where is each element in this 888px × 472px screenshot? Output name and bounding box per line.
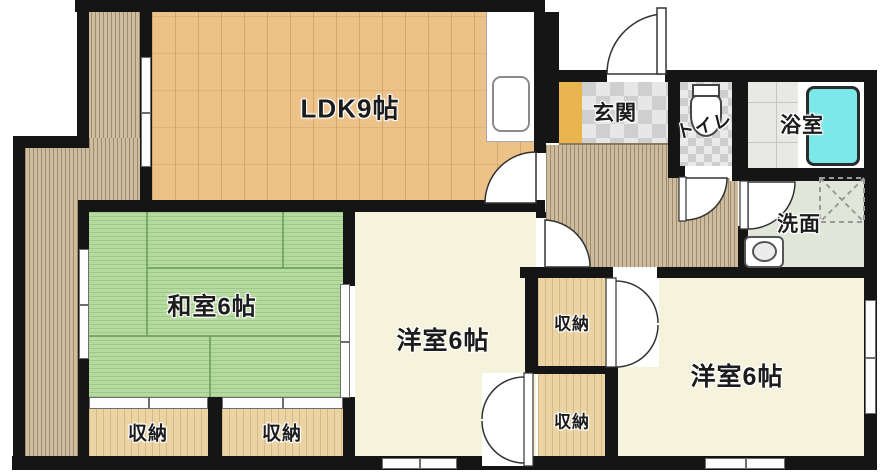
right-room-east-window	[865, 300, 876, 414]
entrance-door-arc	[607, 14, 661, 74]
opening-right-room-entry	[613, 267, 657, 278]
label-washroom: 洗面	[777, 208, 821, 238]
balcony-deck-upper	[87, 12, 140, 140]
japanese-center-sliding-door	[340, 284, 350, 398]
label-western-room-right: 洋室6帖	[691, 357, 784, 393]
label-storage-left-2: 収納	[262, 419, 302, 446]
opening-toilet-door	[685, 166, 732, 178]
label-western-room-center: 洋室6帖	[397, 321, 490, 357]
wall-storage-left-divider	[208, 397, 222, 456]
label-storage-left-1: 収納	[128, 419, 168, 446]
label-entrance: 玄関	[593, 97, 637, 127]
swing-area-center-closet-doors	[482, 373, 533, 466]
tatami-line	[209, 336, 211, 397]
right-room-south-window	[705, 458, 785, 469]
washbasin-bowl	[752, 241, 777, 262]
wall-hall-south-west	[520, 267, 613, 278]
hallway-floor-main	[546, 145, 668, 267]
opening-washroom-door	[738, 181, 748, 226]
wall-toilet-bath	[732, 70, 748, 181]
wall-hall-south-east	[657, 267, 877, 278]
label-storage-mid-bottom: 収納	[554, 408, 590, 433]
entrance-door-leaf	[657, 8, 666, 74]
tatami-line	[146, 212, 148, 336]
wall-left-lower	[13, 136, 25, 470]
hallway-floor-east	[668, 178, 730, 267]
tatami-line	[282, 212, 284, 268]
wall-ldk-south	[78, 200, 545, 212]
label-bathroom: 浴室	[780, 109, 824, 139]
center-room-south-window	[382, 458, 457, 469]
storage-left-1-sliding-door	[89, 397, 208, 409]
wall-ldk-hall	[534, 143, 546, 153]
swing-area-right-room-doors	[606, 278, 659, 367]
wall-entrance-top-left	[558, 70, 607, 82]
storage-left-2-sliding-door	[222, 397, 343, 409]
japanese-room-window	[79, 249, 89, 359]
wall-ldk-east	[534, 12, 559, 143]
wall-storage-mid-east	[605, 373, 618, 456]
wall-japanese-east-lower	[343, 397, 355, 456]
wall-bath-south	[736, 168, 877, 181]
wall-storage-mid-west	[525, 278, 538, 374]
ldk-window	[141, 57, 151, 167]
wall-top	[75, 0, 545, 12]
label-japanese-room: 和室6帖	[167, 287, 256, 322]
label-storage-mid-top: 収納	[554, 310, 590, 335]
balcony-deck-lower	[25, 200, 78, 456]
floorplan: LDK9帖 玄関 トイレ 浴室 洗面 和室6帖 洋室6帖 洋室6帖 収納 収納 …	[0, 0, 888, 472]
hallway-floor-nook	[730, 181, 738, 267]
wall-top-right	[665, 70, 877, 82]
label-ldk: LDK9帖	[301, 89, 400, 126]
tatami-line	[147, 267, 343, 269]
bath-tile-line-v1	[776, 82, 777, 168]
opening-center-room-door	[536, 218, 546, 267]
wall-left-upper	[77, 0, 89, 140]
kitchen-sink	[492, 76, 530, 132]
wall-japanese-east-upper	[343, 212, 355, 286]
tatami-line	[89, 335, 343, 337]
entrance-step	[559, 82, 582, 145]
